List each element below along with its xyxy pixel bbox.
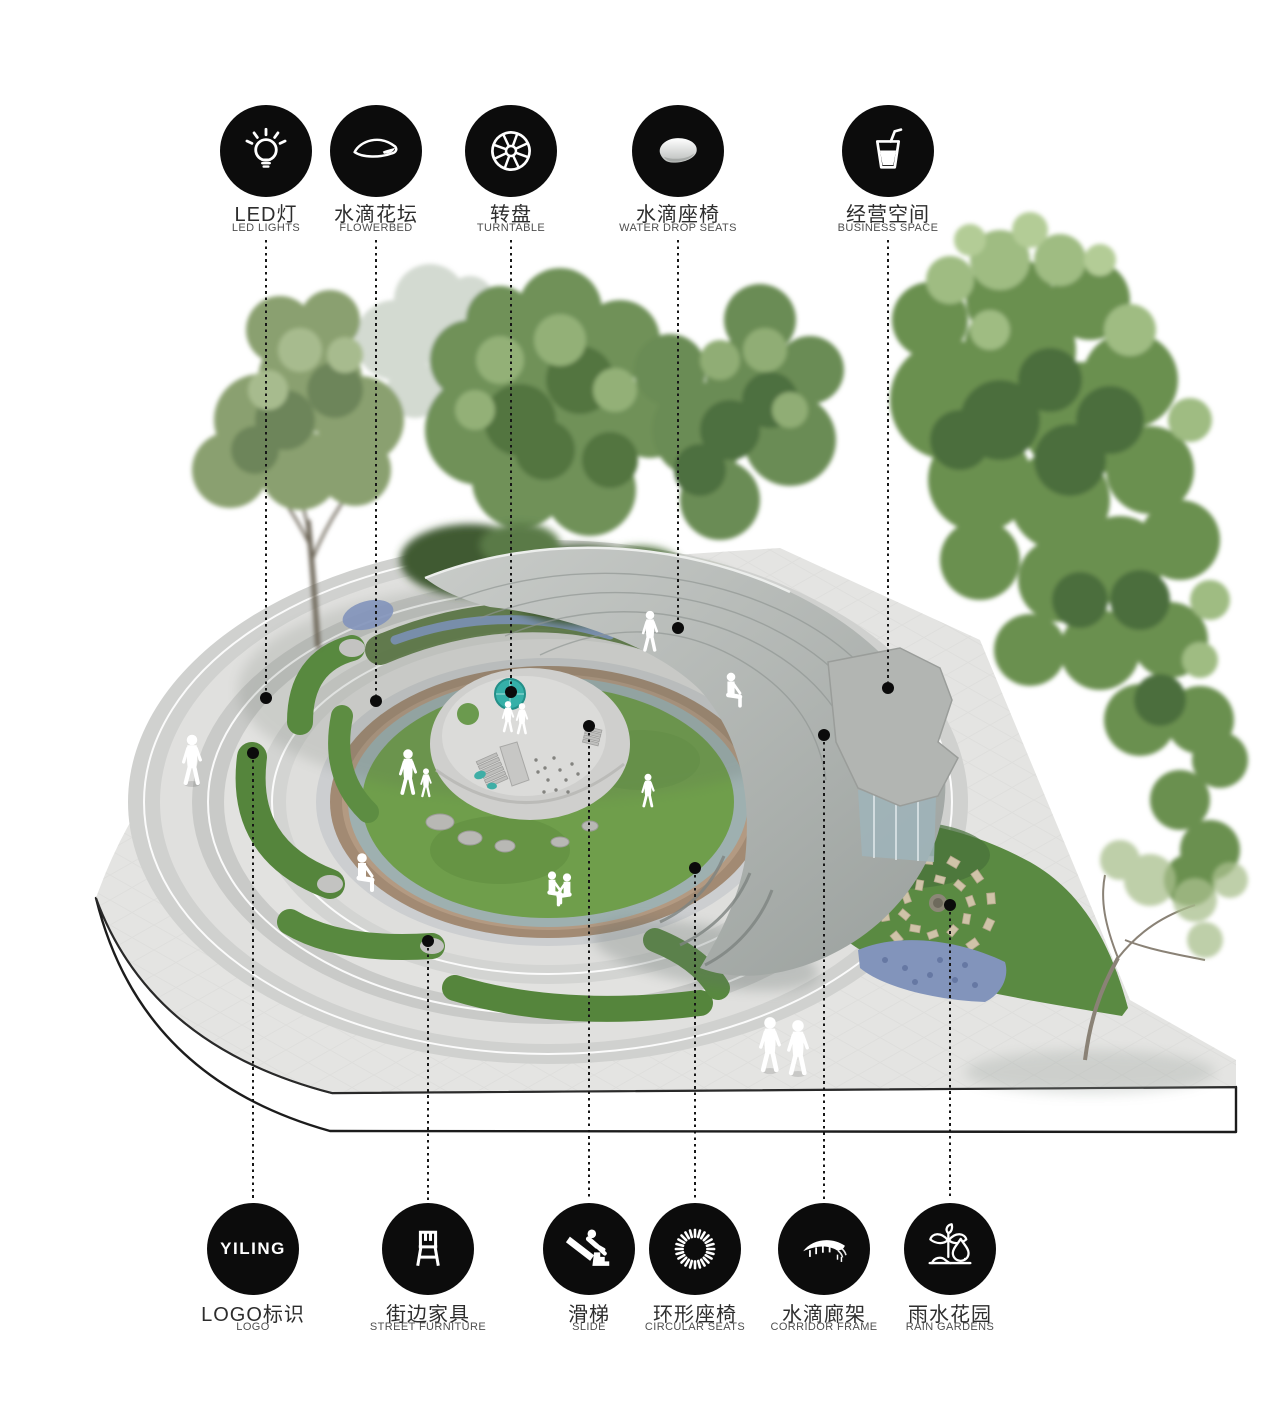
leader-line (588, 733, 590, 1200)
water-drop-seats-badge (632, 105, 724, 197)
street-furniture-badge (382, 1203, 474, 1295)
turntable-wheel-icon (484, 124, 538, 178)
leader-line (252, 760, 254, 1200)
rain-gardens-badge (904, 1203, 996, 1295)
slide-icon (562, 1222, 616, 1276)
flowerbed-leaf-icon (349, 124, 403, 178)
led-lights-badge (220, 105, 312, 197)
leader-line (427, 948, 429, 1200)
turntable-badge (465, 105, 557, 197)
leader-line (677, 240, 679, 622)
corridor-canopy-icon (797, 1222, 851, 1276)
callout-dot (260, 692, 272, 704)
rain-garden-plant-drop-icon (923, 1222, 977, 1276)
label-en: BUSINESS SPACE (778, 222, 998, 234)
callout-dot (882, 682, 894, 694)
water-drop-seat-icon (650, 123, 706, 179)
label-en: RAIN GARDENS (840, 1321, 1060, 1333)
leader-line (887, 240, 889, 682)
chair-icon (402, 1223, 454, 1275)
leader-line (375, 240, 377, 695)
callout-dot (818, 729, 830, 741)
callout-dot (247, 747, 259, 759)
flowerbed-badge (330, 105, 422, 197)
callout-dot (944, 899, 956, 911)
callout-dot (583, 720, 595, 732)
leader-line (694, 875, 696, 1200)
label-en: WATER DROP SEATS (568, 222, 788, 234)
leader-line (949, 912, 951, 1200)
callout-dot (370, 695, 382, 707)
corridor-frame-badge (778, 1203, 870, 1295)
circular-seats-ring-icon (668, 1222, 722, 1276)
callout-dot (689, 862, 701, 874)
callout-dot (505, 686, 517, 698)
presentation-board: LED灯 LED LIGHTS 水滴花坛 FLOWERBED (0, 0, 1280, 1405)
business-space-badge (842, 105, 934, 197)
drink-cup-icon (861, 124, 915, 178)
yiling-logo-icon: YILING (220, 1239, 286, 1259)
led-lights-icon (240, 125, 292, 177)
leader-line (265, 240, 267, 692)
callout-dot (422, 935, 434, 947)
circular-seats-badge (649, 1203, 741, 1295)
logo-badge: YILING (207, 1203, 299, 1295)
slide-badge (543, 1203, 635, 1295)
leader-line (823, 742, 825, 1200)
callout-dot (672, 622, 684, 634)
leader-line (510, 240, 512, 686)
